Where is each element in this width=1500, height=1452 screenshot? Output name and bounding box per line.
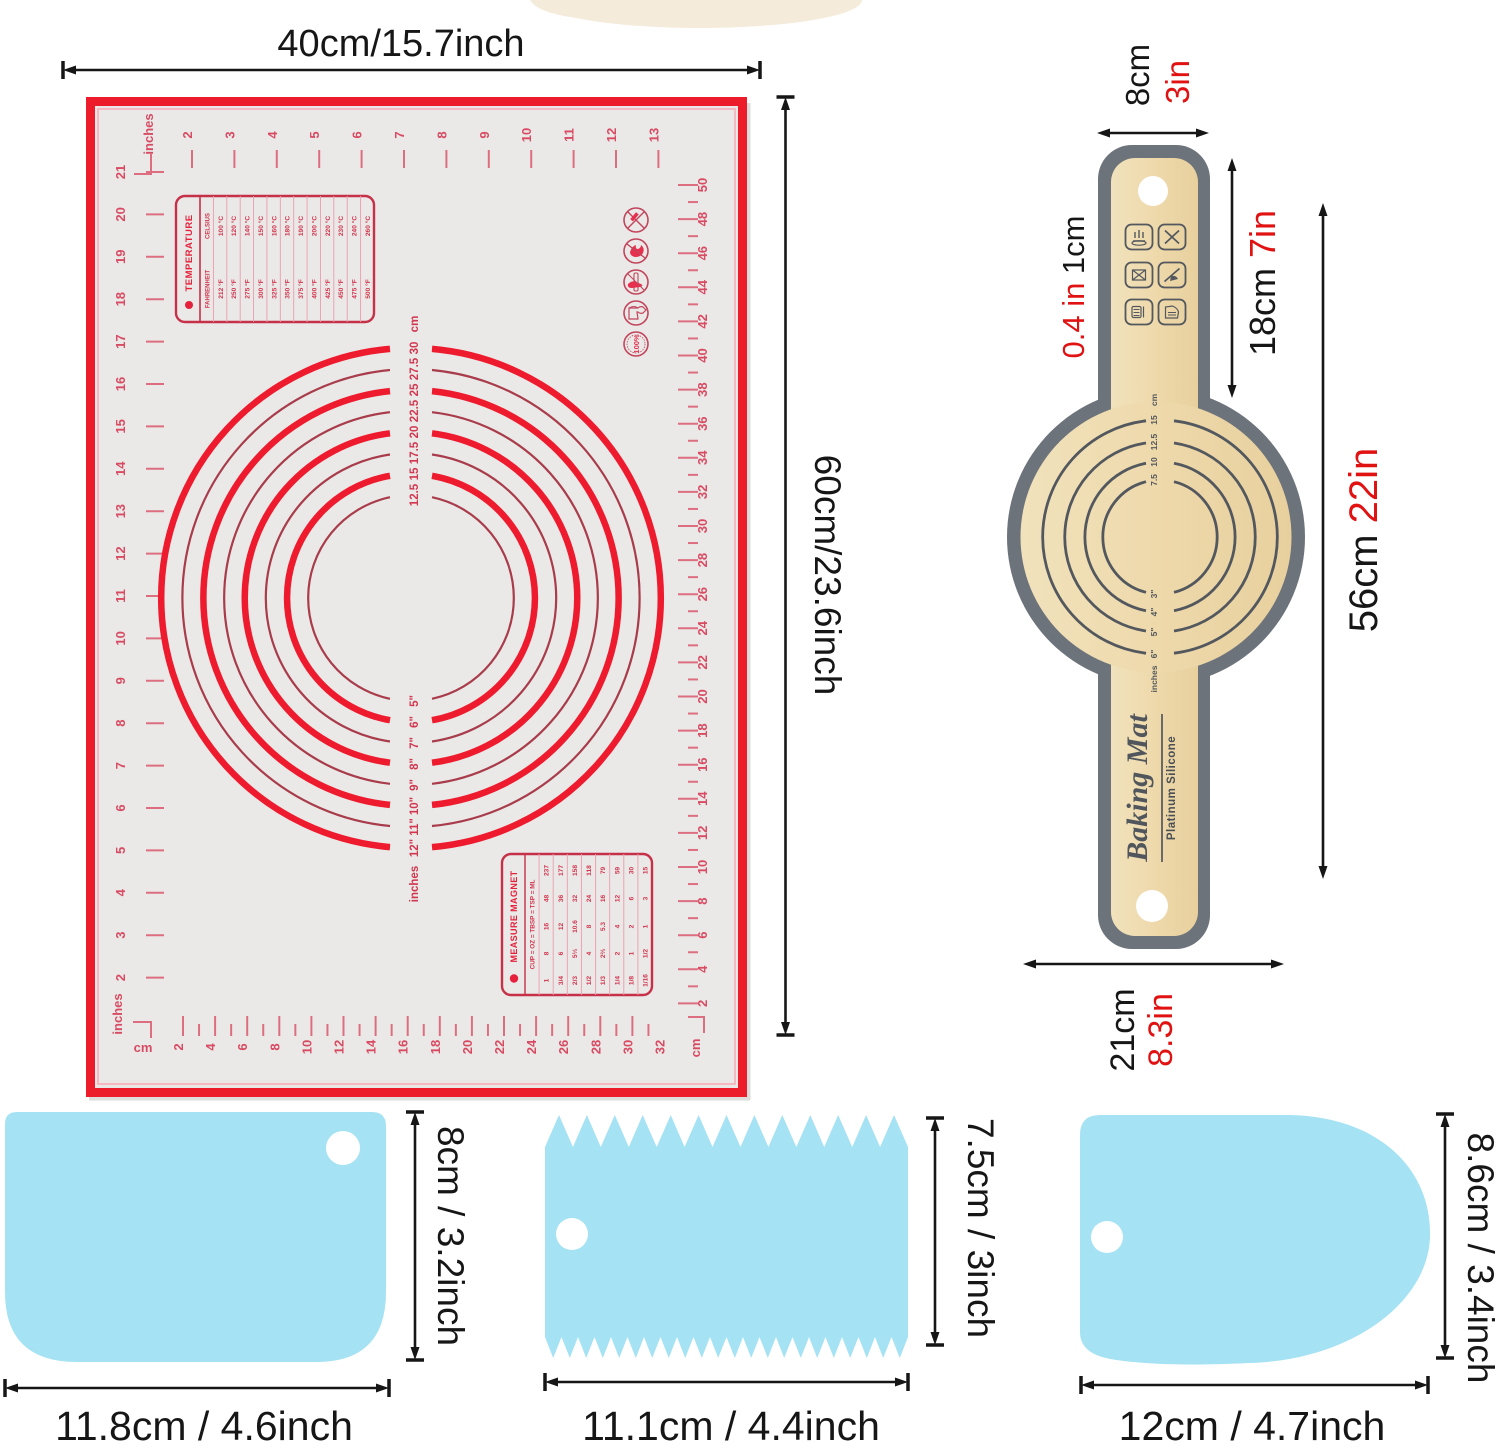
svg-text:150 °C: 150 °C [257,216,265,236]
svg-text:1/4: 1/4 [614,976,621,985]
svg-text:19: 19 [113,250,128,264]
svg-text:375 °F: 375 °F [297,279,305,299]
svg-text:1/8: 1/8 [628,976,635,985]
svg-text:8: 8 [267,1043,282,1050]
svg-text:8cm: 8cm [1119,44,1156,106]
svg-text:8cm / 3.2inch: 8cm / 3.2inch [430,1126,471,1346]
svg-text:16: 16 [113,377,128,391]
svg-text:7": 7" [409,737,421,749]
svg-text:5: 5 [113,847,128,854]
svg-text:15: 15 [1149,415,1159,425]
svg-text:32: 32 [572,895,579,903]
svg-text:240 °C: 240 °C [351,216,359,236]
svg-text:18cm 7in: 18cm 7in [1242,210,1283,356]
svg-text:inches: inches [141,113,156,154]
svg-text:28: 28 [588,1040,603,1054]
svg-text:32: 32 [653,1040,668,1054]
svg-text:13: 13 [113,504,128,518]
svg-text:12cm / 4.7inch: 12cm / 4.7inch [1119,1403,1386,1449]
svg-text:8: 8 [434,131,449,138]
svg-text:22.5: 22.5 [409,399,421,422]
svg-text:9: 9 [477,131,492,138]
svg-text:14: 14 [113,461,128,476]
svg-text:21: 21 [113,165,128,179]
svg-text:CUP = OZ = TBSP = TSP = ML: CUP = OZ = TBSP = TSP = ML [530,879,537,969]
svg-text:10: 10 [1149,457,1159,467]
svg-text:158: 158 [572,865,579,876]
svg-text:16: 16 [396,1040,411,1054]
svg-text:8: 8 [113,720,128,727]
svg-text:18: 18 [113,292,128,306]
svg-text:inches: inches [110,993,125,1034]
svg-text:3": 3" [1149,590,1159,599]
svg-text:17.5: 17.5 [409,441,421,464]
svg-text:14: 14 [364,1039,379,1054]
svg-text:27.5: 27.5 [409,357,421,380]
svg-text:220 °C: 220 °C [324,216,332,236]
svg-text:18: 18 [428,1040,443,1054]
svg-text:1: 1 [628,951,635,955]
svg-text:4: 4 [203,1043,218,1051]
svg-text:CELSIUS: CELSIUS [205,213,211,239]
svg-text:450 °F: 450 °F [337,279,345,299]
svg-text:40cm/15.7inch: 40cm/15.7inch [277,23,524,65]
svg-text:cm: cm [134,1040,153,1055]
svg-text:60cm/23.6inch: 60cm/23.6inch [807,455,848,696]
svg-text:16: 16 [600,895,607,903]
svg-text:1: 1 [643,924,650,928]
svg-text:200 °C: 200 °C [310,216,318,236]
svg-text:8.6cm / 3.4inch: 8.6cm / 3.4inch [1460,1133,1500,1384]
svg-text:Platinum Silicone: Platinum Silicone [1166,736,1178,840]
svg-text:425 °F: 425 °F [324,279,332,299]
svg-text:21cm: 21cm [1104,988,1142,1071]
svg-text:12.5: 12.5 [409,483,421,506]
svg-text:160 °C: 160 °C [270,216,278,236]
svg-text:8: 8 [586,924,593,928]
svg-text:12: 12 [604,128,619,142]
svg-text:400 °F: 400 °F [310,279,318,299]
svg-text:212 °F: 212 °F [217,279,225,299]
svg-text:1/2: 1/2 [586,976,593,985]
svg-text:100%: 100% [632,334,641,354]
svg-text:11.8cm / 4.6inch: 11.8cm / 4.6inch [55,1403,353,1449]
svg-text:MEASURE MAGNET: MEASURE MAGNET [509,870,519,962]
svg-text:4: 4 [265,131,280,139]
svg-text:6: 6 [235,1043,250,1050]
svg-text:3: 3 [113,932,128,939]
svg-text:118: 118 [586,865,593,876]
svg-text:6: 6 [350,131,365,138]
svg-text:325 °F: 325 °F [270,279,278,299]
svg-text:cm: cm [688,1039,703,1058]
svg-text:56cm 22in: 56cm 22in [1342,448,1386,633]
svg-text:8": 8" [409,758,421,770]
svg-text:500 °F: 500 °F [364,279,372,299]
svg-text:10: 10 [113,631,128,645]
svg-text:3in: 3in [1159,60,1196,104]
svg-text:3: 3 [222,131,237,138]
svg-text:250 °F: 250 °F [230,279,238,299]
svg-text:5.3: 5.3 [600,922,607,931]
svg-text:4: 4 [113,888,128,896]
svg-text:4: 4 [614,924,621,928]
svg-text:9": 9" [409,779,421,791]
svg-text:5: 5 [307,131,322,138]
svg-text:11.1cm / 4.4inch: 11.1cm / 4.4inch [582,1403,880,1449]
svg-text:Baking Mat: Baking Mat [1121,713,1154,863]
svg-text:79: 79 [600,867,607,875]
svg-text:13: 13 [646,128,661,142]
svg-text:180 °C: 180 °C [284,216,292,236]
svg-text:20: 20 [460,1040,475,1054]
svg-text:59: 59 [614,867,621,875]
svg-text:25: 25 [409,383,421,396]
svg-text:cm: cm [1149,393,1159,406]
svg-text:10.6: 10.6 [572,920,579,933]
svg-text:6: 6 [628,896,635,900]
svg-text:TEMPERATURE: TEMPERATURE [184,214,195,291]
svg-text:15: 15 [409,467,421,480]
svg-text:1: 1 [544,978,551,982]
svg-text:30: 30 [620,1040,635,1054]
svg-text:120 °C: 120 °C [230,216,238,236]
svg-text:3: 3 [643,896,650,900]
svg-text:260 °C: 260 °C [364,216,372,236]
svg-text:177: 177 [558,865,565,876]
svg-text:6: 6 [113,804,128,811]
svg-text:8: 8 [544,951,551,955]
svg-text:300 °F: 300 °F [257,279,265,299]
svg-text:100 °C: 100 °C [217,216,225,236]
svg-text:2: 2 [113,974,128,981]
svg-text:475 °F: 475 °F [351,279,359,299]
svg-text:2: 2 [614,951,621,955]
svg-text:10: 10 [299,1040,314,1054]
svg-text:30: 30 [628,867,635,875]
svg-text:5": 5" [1149,628,1159,637]
svg-text:26: 26 [556,1040,571,1054]
svg-text:11: 11 [113,589,128,603]
svg-text:inches: inches [1149,665,1159,692]
svg-text:6": 6" [1149,650,1159,659]
svg-text:11": 11" [409,818,421,836]
svg-text:140 °C: 140 °C [244,216,252,236]
svg-text:350 °F: 350 °F [284,279,292,299]
svg-text:1/3: 1/3 [600,976,607,985]
svg-text:2/3: 2/3 [572,976,579,985]
svg-text:7: 7 [392,131,407,138]
svg-text:9: 9 [113,677,128,684]
svg-text:48: 48 [544,895,551,903]
svg-text:12: 12 [614,895,621,903]
svg-text:0.4 in 1cm: 0.4 in 1cm [1056,215,1091,358]
svg-text:17: 17 [113,334,128,348]
svg-text:2⅔: 2⅔ [600,948,607,958]
svg-text:230 °C: 230 °C [337,216,345,236]
svg-text:6: 6 [558,951,565,955]
svg-text:6": 6" [409,716,421,728]
svg-text:24: 24 [586,895,593,903]
svg-text:15: 15 [113,419,128,433]
svg-text:7: 7 [113,762,128,769]
svg-text:10: 10 [519,128,534,142]
svg-text:190 °C: 190 °C [297,216,305,236]
svg-text:cm: cm [409,316,421,333]
svg-text:8.3in: 8.3in [1142,993,1180,1067]
svg-text:16: 16 [544,923,551,931]
svg-text:20: 20 [113,207,128,221]
svg-text:20: 20 [409,426,421,439]
svg-text:7.5: 7.5 [1149,474,1159,486]
svg-text:15: 15 [643,867,650,875]
svg-text:1/16: 1/16 [643,974,650,987]
svg-text:12: 12 [332,1040,347,1054]
svg-text:2: 2 [180,131,195,138]
svg-text:22: 22 [492,1040,507,1054]
svg-text:24: 24 [524,1039,539,1054]
svg-text:5": 5" [409,695,421,707]
svg-text:36: 36 [558,895,565,903]
svg-text:30: 30 [409,342,421,355]
svg-text:2: 2 [628,924,635,928]
svg-text:10": 10" [409,797,421,815]
svg-text:12": 12" [409,839,421,857]
svg-text:5⅓: 5⅓ [572,948,579,958]
svg-text:11: 11 [562,128,577,142]
svg-text:inches: inches [409,866,421,902]
svg-text:2: 2 [171,1043,186,1050]
svg-text:12: 12 [113,546,128,560]
svg-text:FAHRENHEIT: FAHRENHEIT [205,270,211,309]
svg-text:4: 4 [586,951,593,955]
svg-text:1/2: 1/2 [643,949,650,958]
svg-text:3/4: 3/4 [558,976,565,985]
svg-text:12: 12 [558,923,565,931]
svg-text:275 °F: 275 °F [244,279,252,299]
svg-text:237: 237 [544,865,551,876]
svg-text:4": 4" [1149,608,1159,617]
svg-text:7.5cm / 3inch: 7.5cm / 3inch [960,1118,1001,1338]
svg-text:12.5: 12.5 [1149,433,1159,450]
